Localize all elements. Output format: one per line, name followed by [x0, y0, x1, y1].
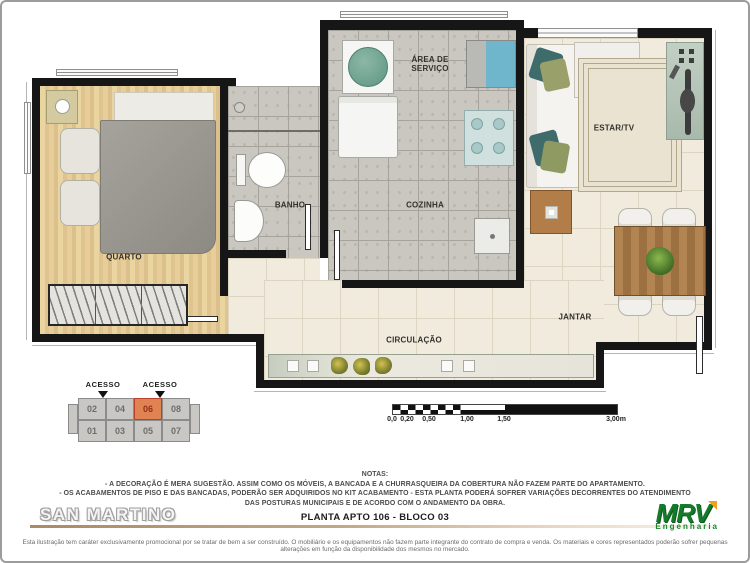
room-label-area-servico-line2: SERVIÇO — [411, 64, 448, 73]
window-estar-top — [532, 28, 638, 38]
flower-icon — [375, 357, 392, 374]
bed-sheet — [114, 92, 214, 122]
tv-base — [680, 89, 695, 113]
speaker-dot-icon — [679, 49, 684, 54]
wall-left-circulacao — [256, 334, 264, 388]
scale-bar-rule — [392, 404, 618, 415]
scale-tick-label: 1,50 — [497, 416, 511, 423]
project-name: SAN MARTINO — [40, 505, 176, 525]
wall-bottom-jantar — [596, 342, 712, 350]
speaker-dot-icon — [689, 49, 694, 54]
flower-icon — [331, 357, 348, 374]
acesso-label: ACESSO — [86, 380, 121, 389]
table-plant-icon — [646, 247, 674, 275]
burner-icon — [493, 142, 505, 154]
room-label-cozinha: COZINHA — [406, 201, 444, 210]
dining-table — [614, 226, 706, 296]
window-quarto-top — [56, 69, 178, 76]
acesso-arrow-icon — [155, 391, 165, 398]
bed-pillow — [60, 128, 100, 174]
scale-checker-bottom — [393, 410, 468, 415]
acesso-arrow-icon — [98, 391, 108, 398]
side-table — [530, 190, 572, 234]
footer-rule — [30, 525, 714, 528]
door-cozinha — [334, 230, 340, 280]
stove-icon — [464, 110, 514, 166]
faucet-icon — [490, 234, 495, 239]
mrv-logo: MRV Engenharia — [647, 500, 719, 531]
sofa-pillow — [540, 140, 571, 174]
unit-cell-05: 05 — [134, 420, 162, 442]
keyplan-tab-right — [190, 404, 200, 434]
unit-cell-02: 02 — [78, 398, 106, 420]
mrv-logo-letters: MRV — [656, 498, 711, 528]
shower-divider — [228, 130, 320, 132]
laundry-tank — [342, 40, 394, 94]
toilet-icon — [248, 152, 286, 188]
room-label-circulacao: CIRCULAÇÃO — [386, 336, 442, 345]
planter-tile — [441, 360, 453, 372]
notes-block: NOTAS: - A DECORAÇÃO É MERA SUGESTÃO. AS… — [2, 470, 748, 508]
shower-head-icon — [234, 102, 245, 113]
tv-rack — [666, 42, 704, 140]
scale-bar: 0,0 0,20 0,50 1,00 1,50 3,00m — [392, 404, 616, 430]
outline-hairline-bottom-quarto — [32, 345, 262, 346]
window-quarto-left — [24, 102, 31, 174]
wall-top-cozinha — [320, 20, 524, 30]
wall-banho-bottom — [220, 250, 286, 258]
room-label-quarto: QUARTO — [106, 253, 142, 262]
wall-right — [704, 28, 712, 350]
unit-cell-01: 01 — [78, 420, 106, 442]
wall-top-estar-left — [516, 28, 538, 38]
wall-bottom-quarto — [32, 334, 264, 342]
laundry-tank-basin — [348, 47, 388, 87]
nightstand — [46, 90, 78, 124]
wall-top-estar-right — [638, 28, 712, 38]
scale-tick-label: 0,20 — [400, 416, 414, 423]
candle-icon — [545, 206, 558, 219]
burner-icon — [493, 118, 505, 130]
dining-chair — [618, 294, 652, 316]
outline-hairline-right — [715, 30, 716, 348]
keyplan-grid: 02 04 06 08 01 03 05 07 — [78, 398, 190, 442]
notes-line: - A DECORAÇÃO É MERA SUGESTÃO. ASSIM COM… — [2, 480, 748, 490]
wall-top-quarto — [32, 78, 236, 86]
washing-machine-icon — [338, 96, 398, 158]
scale-tick-label: 0,0 — [387, 416, 397, 423]
speaker-dot-icon — [679, 58, 684, 63]
wall-left — [32, 78, 40, 342]
unit-cell-06-highlighted: 06 — [134, 398, 162, 420]
wall-cozinha-estar — [516, 38, 524, 288]
toilet-tank — [236, 154, 246, 186]
wall-cozinha-bottom — [342, 280, 524, 288]
door-banho — [305, 204, 311, 250]
wall-bottom-circulacao — [256, 380, 604, 388]
unit-cell-03: 03 — [106, 420, 134, 442]
dining-chair — [662, 294, 696, 316]
mrv-logo-accent-icon — [708, 501, 717, 510]
lamp-icon — [55, 99, 70, 114]
planter-tile — [287, 360, 299, 372]
wall-banho-cozinha — [320, 30, 328, 258]
service-sink — [466, 40, 516, 88]
remote-icon — [669, 65, 680, 80]
acesso-label: ACESSO — [143, 380, 178, 389]
planter-box — [268, 354, 594, 378]
unit-cell-07: 07 — [162, 420, 190, 442]
wardrobe — [48, 284, 188, 326]
keyplan-row-bottom: 01 03 05 07 — [78, 420, 190, 442]
plan-title: PLANTA APTO 106 - BLOCO 03 — [301, 512, 449, 523]
outline-hairline-bottom-circ — [254, 391, 606, 392]
wall-quarto-banho — [220, 86, 228, 296]
planter-tile — [307, 360, 319, 372]
room-label-area-servico: ÁREA DE SERVIÇO — [411, 55, 448, 73]
unit-cell-04: 04 — [106, 398, 134, 420]
room-label-estar-tv: ESTAR/TV — [594, 124, 635, 133]
scale-tick-label: 1,00 — [460, 416, 474, 423]
flower-icon — [353, 358, 370, 375]
floorplan-sheet: QUARTO BANHO COZINHA ÁREA DE SERVIÇO EST… — [0, 0, 750, 563]
burner-icon — [471, 142, 483, 154]
planter-tile — [463, 360, 475, 372]
burner-icon — [471, 118, 483, 130]
bed-pillow — [60, 180, 100, 226]
room-label-banho: BANHO — [275, 201, 305, 210]
speaker-dot-icon — [689, 58, 694, 63]
keyplan-tab-left — [68, 404, 78, 434]
mrv-logo-text: MRV — [647, 500, 719, 526]
kitchen-sink-icon — [474, 218, 510, 254]
notes-line: - OS ACABAMENTOS DE PISO E DAS BANCADAS,… — [2, 489, 748, 499]
scale-tick-label: 3,00m — [606, 416, 626, 423]
room-label-area-servico-line1: ÁREA DE — [411, 55, 448, 64]
scale-tick-label: 0,50 — [422, 416, 436, 423]
room-label-jantar: JANTAR — [558, 313, 591, 322]
keyplan-row-top: 02 04 06 08 — [78, 398, 190, 420]
scale-segment-end — [505, 405, 617, 414]
notes-title: NOTAS: — [2, 470, 748, 480]
scale-segment-mid — [468, 410, 505, 415]
bed-duvet — [100, 120, 216, 254]
disclaimer-text: Esta ilustração tem caráter exclusivamen… — [12, 539, 738, 553]
door-right-wall — [696, 316, 703, 374]
window-servico-top — [340, 11, 508, 18]
unit-cell-08: 08 — [162, 398, 190, 420]
